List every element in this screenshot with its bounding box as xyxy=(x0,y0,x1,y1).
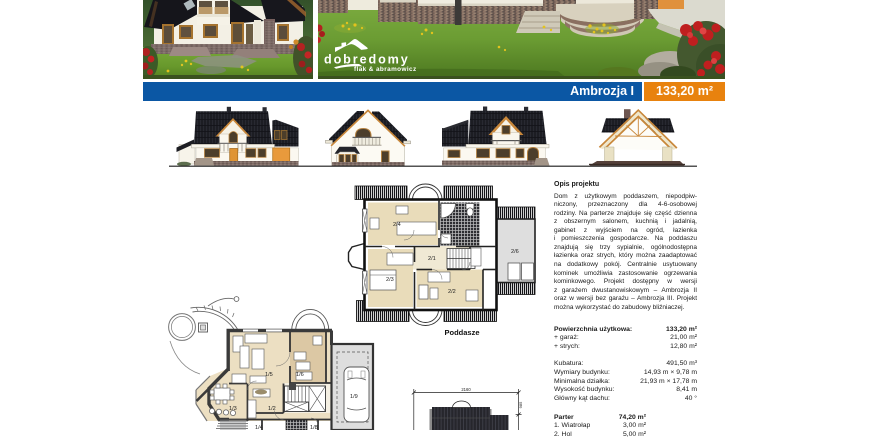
svg-text:1/3: 1/3 xyxy=(229,406,237,412)
svg-text:1/9: 1/9 xyxy=(350,394,358,400)
svg-text:2/2: 2/2 xyxy=(448,289,456,295)
svg-text:flak & abramowicz: flak & abramowicz xyxy=(354,66,417,73)
svg-text:2/6: 2/6 xyxy=(511,249,519,255)
svg-text:2/4: 2/4 xyxy=(393,222,401,228)
svg-text:1/6: 1/6 xyxy=(296,372,304,378)
svg-text:2/1: 2/1 xyxy=(428,256,436,262)
svg-text:1/8: 1/8 xyxy=(310,425,318,430)
svg-text:1/4: 1/4 xyxy=(255,425,263,430)
svg-text:985: 985 xyxy=(518,401,523,408)
svg-text:1/5: 1/5 xyxy=(265,372,273,378)
svg-text:1/2: 1/2 xyxy=(268,406,276,412)
svg-text:2160: 2160 xyxy=(461,387,471,392)
svg-text:2/3: 2/3 xyxy=(386,277,394,283)
svg-text:dobredomy: dobredomy xyxy=(324,53,410,67)
